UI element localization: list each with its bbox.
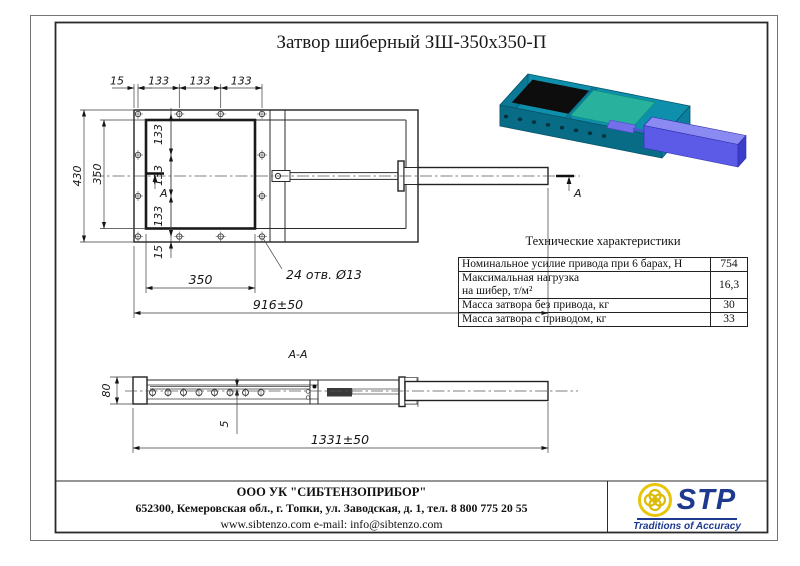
- spec-value: 16,3: [711, 272, 748, 299]
- dim-plate-5: 5: [218, 421, 231, 428]
- dim-height-80: 80: [100, 384, 113, 398]
- spec-value: 30: [711, 299, 748, 313]
- table-row: Номинальное усилие привода при 6 барах, …: [459, 258, 748, 272]
- specs-title: Технические характеристики: [458, 234, 748, 249]
- title-block: ООО УК "СИБТЕНЗОПРИБОР" 652300, Кемеровс…: [56, 482, 767, 533]
- section-mark-right: А: [556, 176, 582, 200]
- logo-tagline: Traditions of Accuracy: [633, 521, 741, 532]
- company-info: ООО УК "СИБТЕНЗОПРИБОР" 652300, Кемеровс…: [56, 482, 607, 533]
- dim-row-133c: 133: [152, 206, 165, 227]
- rod-coupling: [327, 388, 352, 397]
- section-view: А-А: [100, 348, 578, 453]
- spec-value: 33: [711, 313, 748, 327]
- company-address: 652300, Кемеровская обл., г. Топки, ул. …: [56, 500, 607, 516]
- section-view-title: А-А: [287, 348, 307, 361]
- dim-opening-350v: 350: [91, 164, 104, 185]
- dim-top-15: 15: [110, 75, 124, 88]
- dim-row-133b: 133: [152, 165, 165, 186]
- specs-panel: Технические характеристики Номинальное у…: [458, 234, 748, 327]
- table-row: Масса затвора без привода, кг 30: [459, 299, 748, 313]
- spec-label: Масса затвора с приводом, кг: [459, 313, 711, 327]
- top-dimensions: 15 133 133 133: [110, 75, 262, 109]
- page-title: Затвор шиберный ЗШ-350х350-П: [55, 32, 768, 54]
- drawing-sheet: А А 15 133 133: [0, 0, 800, 566]
- dim-top-133a: 133: [148, 75, 169, 88]
- dim-top-133b: 133: [190, 75, 211, 88]
- section-mark-label-right: А: [573, 187, 582, 200]
- spec-label: Номинальное усилие привода при 6 барах, …: [459, 258, 711, 272]
- spec-value: 754: [711, 258, 748, 272]
- specs-table: Номинальное усилие привода при 6 барах, …: [458, 257, 748, 327]
- section-mark-label-left: А: [159, 187, 168, 200]
- dim-opening-350h: 350: [189, 272, 213, 287]
- logo-text: STP: [677, 485, 736, 515]
- table-row: Масса затвора с приводом, кг 33: [459, 313, 748, 327]
- company-name: ООО УК "СИБТЕНЗОПРИБОР": [56, 484, 607, 500]
- spec-label: Масса затвора без привода, кг: [459, 299, 711, 313]
- company-contacts: www.sibtenzo.com e-mail: info@sibtenzo.c…: [56, 516, 607, 532]
- dim-length-1331: 1331±50: [311, 432, 369, 447]
- spec-label: Максимальная нагрузка на шибер, т/м²: [459, 272, 711, 299]
- holes-note: 24 отв. Ø13: [286, 267, 362, 282]
- stp-logo: STP Traditions of Accuracy: [633, 483, 741, 532]
- dim-top-133c: 133: [231, 75, 252, 88]
- dim-length-916: 916±50: [253, 297, 303, 312]
- table-row: Максимальная нагрузка на шибер, т/м² 16,…: [459, 272, 748, 299]
- logo-underline: [637, 518, 737, 520]
- dim-row-133a: 133: [152, 124, 165, 145]
- dim-row-15: 15: [152, 245, 165, 259]
- stp-emblem-icon: [638, 483, 672, 517]
- valve-3d-render: [500, 74, 746, 167]
- dim-height-430: 430: [71, 166, 84, 187]
- logo-cell: STP Traditions of Accuracy: [607, 482, 767, 533]
